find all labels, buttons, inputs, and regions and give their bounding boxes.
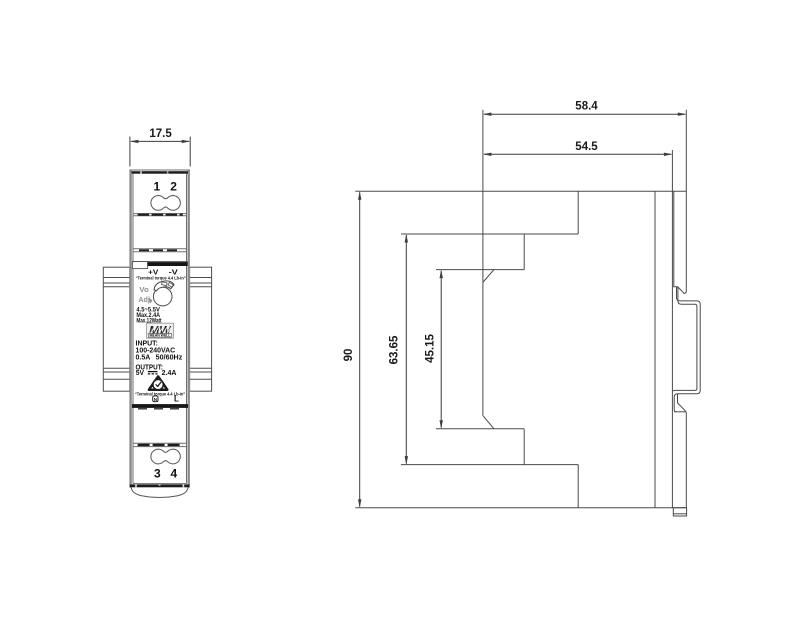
svg-text:3: 3 — [154, 467, 161, 481]
svg-text:63.65: 63.65 — [389, 335, 401, 364]
svg-text:4: 4 — [170, 467, 177, 481]
svg-text:2: 2 — [170, 179, 177, 193]
svg-text:0.5A: 0.5A — [136, 354, 151, 361]
svg-text:54.5: 54.5 — [575, 141, 598, 153]
svg-text:17.5: 17.5 — [149, 128, 172, 140]
svg-text:45.15: 45.15 — [425, 334, 437, 363]
svg-text:Vo: Vo — [139, 285, 149, 294]
svg-text:5V: 5V — [136, 370, 145, 377]
svg-text:58.4: 58.4 — [575, 101, 598, 113]
svg-text:2.4A: 2.4A — [162, 370, 177, 377]
svg-text:90: 90 — [343, 349, 355, 362]
svg-text:MEAN WELL: MEAN WELL — [150, 334, 171, 338]
svg-text:1: 1 — [153, 179, 160, 193]
svg-text:INPUT:: INPUT: — [136, 339, 159, 348]
svg-text:L: L — [174, 395, 179, 404]
svg-text:50/60Hz: 50/60Hz — [156, 354, 183, 361]
svg-text:“Terminal torque 4.4 Lb-in”: “Terminal torque 4.4 Lb-in” — [136, 276, 186, 281]
